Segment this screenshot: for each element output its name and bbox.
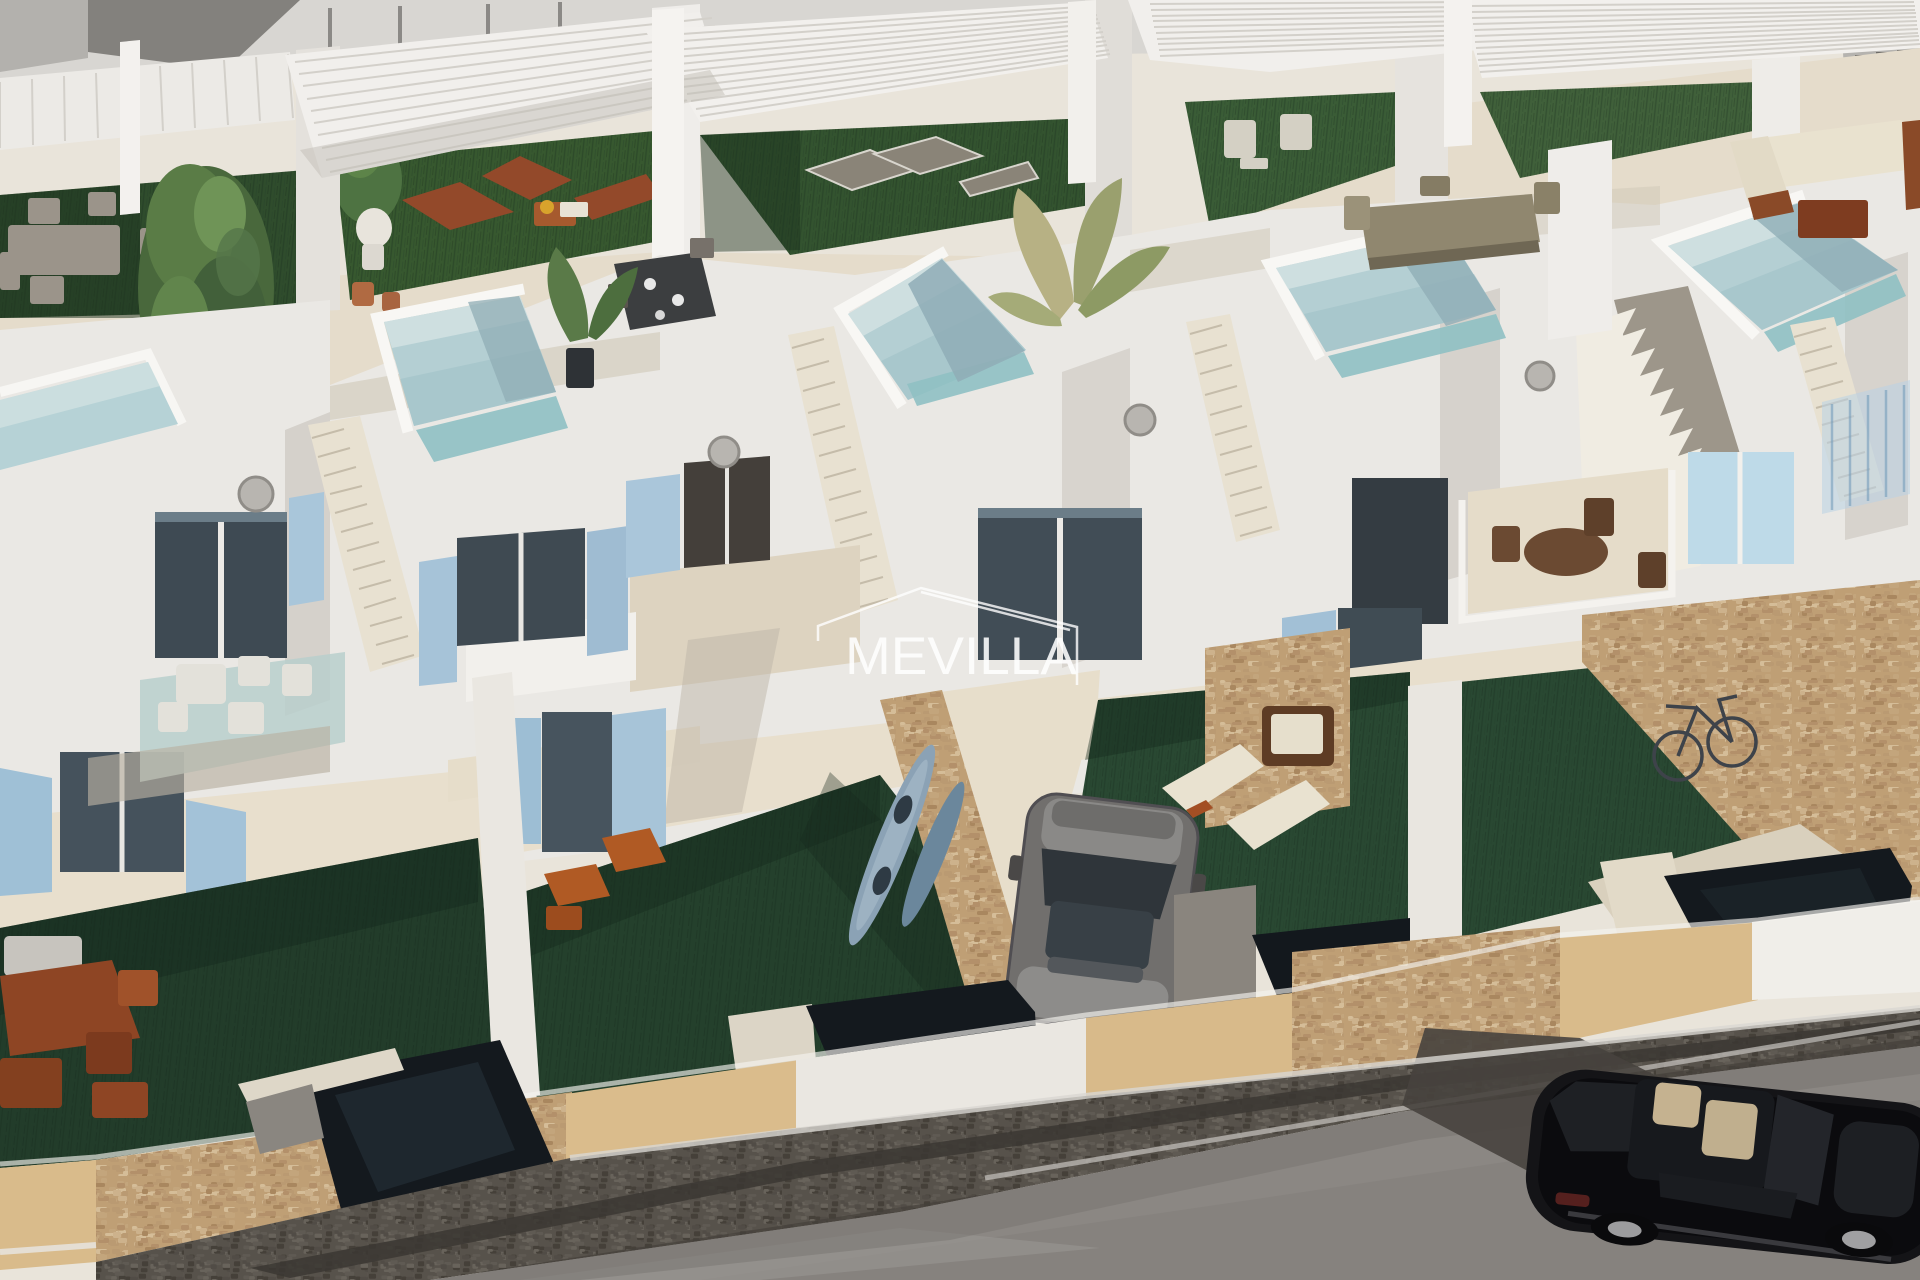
svg-text:MEVILLA: MEVILLA [845,627,1078,686]
